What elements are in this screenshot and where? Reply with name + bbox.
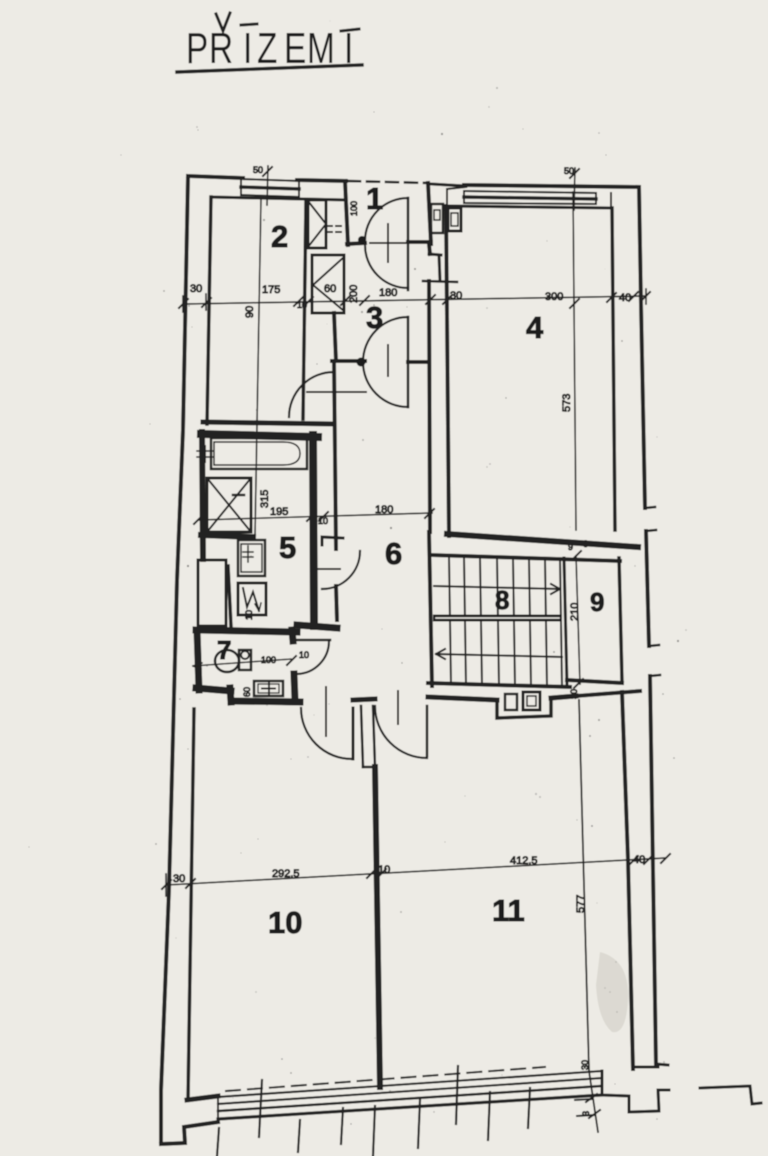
svg-text:3: 3 [366, 300, 383, 335]
svg-text:10: 10 [318, 516, 328, 526]
svg-text:195: 195 [270, 506, 288, 518]
svg-text:7: 7 [217, 635, 231, 665]
svg-text:577: 577 [575, 895, 587, 913]
svg-text:6: 6 [385, 536, 402, 571]
svg-text:50: 50 [564, 166, 574, 176]
svg-text:180: 180 [375, 504, 393, 516]
svg-text:10: 10 [268, 905, 302, 940]
svg-text:100: 100 [349, 201, 359, 216]
svg-text:4: 4 [526, 310, 544, 345]
svg-text:3: 3 [581, 1111, 591, 1116]
svg-text:412,5: 412,5 [510, 855, 538, 867]
svg-text:10: 10 [299, 650, 309, 660]
svg-text:10: 10 [378, 864, 390, 876]
svg-text:R: R [209, 25, 233, 73]
svg-text:50: 50 [253, 165, 263, 175]
svg-text:100: 100 [261, 655, 276, 665]
svg-text:175: 175 [262, 284, 280, 296]
svg-text:30: 30 [450, 290, 462, 302]
svg-text:2: 2 [271, 219, 288, 254]
svg-text:10: 10 [244, 610, 254, 620]
svg-text:300: 300 [545, 291, 563, 303]
svg-text:180: 180 [379, 287, 397, 299]
svg-text:292,5: 292,5 [272, 868, 300, 880]
svg-text:30: 30 [190, 283, 202, 295]
svg-text:60: 60 [324, 283, 336, 295]
svg-text:8: 8 [495, 585, 509, 615]
svg-text:90: 90 [244, 306, 256, 318]
svg-text:40: 40 [633, 854, 645, 866]
svg-text:30: 30 [580, 1060, 590, 1070]
svg-text:60: 60 [242, 687, 252, 697]
svg-text:30: 30 [173, 873, 185, 885]
svg-text:Z: Z [257, 25, 277, 73]
svg-text:P: P [186, 25, 208, 73]
svg-text:9: 9 [590, 587, 604, 617]
svg-text:210: 210 [569, 603, 581, 621]
svg-text:573: 573 [561, 394, 573, 412]
svg-text:40: 40 [619, 292, 631, 304]
svg-text:315: 315 [259, 490, 271, 508]
svg-text:1: 1 [366, 181, 383, 216]
svg-text:11: 11 [492, 893, 525, 928]
svg-text:5: 5 [279, 530, 296, 565]
svg-text:I: I [243, 25, 252, 73]
svg-text:200: 200 [348, 285, 360, 303]
